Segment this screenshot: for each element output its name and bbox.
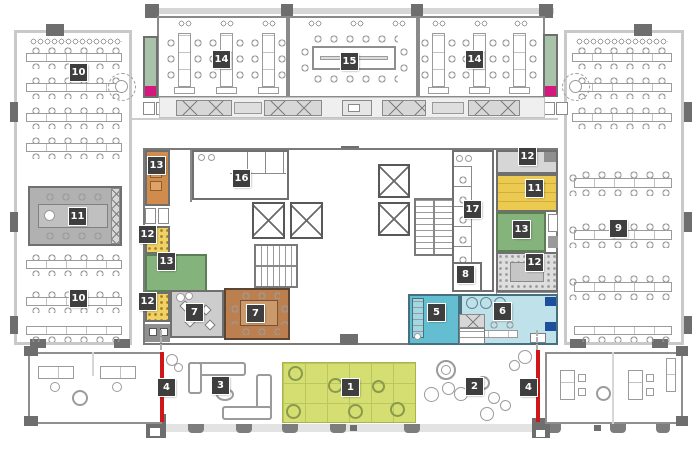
office-desk — [560, 370, 575, 400]
desk-bench — [26, 143, 122, 152]
sink — [208, 154, 215, 161]
pilaster — [684, 316, 692, 334]
round-table — [72, 390, 88, 406]
chair-row — [42, 231, 106, 240]
office-desk — [628, 370, 643, 400]
chair-row — [238, 327, 280, 335]
office-chair — [646, 388, 654, 396]
fridge-unit — [459, 314, 485, 328]
chair-col — [166, 35, 176, 85]
chair-col — [488, 35, 498, 85]
chair-row — [28, 152, 120, 159]
cloak-shelf — [432, 102, 464, 114]
chair-col — [399, 44, 408, 72]
desk-bench — [432, 33, 445, 87]
divider-dashed — [160, 330, 162, 350]
chair-row — [578, 240, 670, 248]
room-badge-10-top: 10 — [70, 64, 87, 81]
pilaster — [10, 212, 18, 232]
wall-chairs — [220, 20, 234, 27]
round-table — [286, 404, 301, 419]
chair-col — [277, 35, 287, 85]
chair-row — [574, 106, 670, 113]
room-badge-14-right: 14 — [466, 51, 483, 68]
column — [46, 24, 64, 36]
pilaster — [684, 212, 692, 232]
desk-chairs — [30, 38, 122, 45]
office-divider — [612, 352, 614, 424]
sink — [456, 155, 463, 162]
room-badge-12-right-top: 12 — [519, 148, 536, 165]
chair-row — [28, 136, 120, 143]
reception-table — [569, 80, 582, 93]
desk-bench — [262, 33, 275, 87]
room-badge-13-green-right: 13 — [513, 221, 530, 238]
desk-bench — [574, 326, 672, 335]
plant — [174, 363, 183, 372]
wall-chairs — [474, 20, 488, 27]
sofa — [222, 406, 272, 420]
door-bump — [188, 424, 204, 433]
office-divider — [92, 352, 94, 376]
room-badge-7-gray: 7 — [186, 304, 203, 321]
wall-chairs — [262, 20, 276, 27]
chair-row — [28, 46, 120, 53]
wall-chairs — [514, 20, 528, 27]
chair-row — [28, 122, 120, 129]
cabinet — [150, 181, 162, 191]
chair-col — [568, 170, 577, 196]
round-table — [372, 380, 385, 393]
room-badge-12-right-bottom: 12 — [526, 254, 543, 271]
wardrobe-x — [468, 100, 520, 116]
chair-row — [28, 253, 120, 260]
room-badge-16: 16 — [233, 170, 250, 187]
office-chair — [578, 374, 586, 382]
chair-row — [28, 306, 120, 313]
pilaster — [10, 316, 18, 334]
wall-chairs — [350, 20, 364, 27]
chair-col — [280, 301, 288, 325]
chair-row — [578, 335, 670, 342]
chair-col — [528, 35, 538, 85]
locker — [158, 208, 169, 224]
room-badge-1: 1 — [342, 379, 359, 396]
office-desk — [100, 366, 136, 379]
desk-bench — [574, 178, 672, 188]
column — [634, 24, 652, 36]
floor-plan: 1 2 3 4 4 5 6 7 7 8 9 10 10 11 11 12 12 … — [0, 0, 700, 452]
door-bump — [236, 424, 252, 433]
stair-rail — [256, 265, 296, 267]
storage-hatch — [111, 188, 120, 244]
wall — [190, 150, 192, 202]
pilaster — [684, 102, 692, 122]
stair-block-inner — [536, 430, 545, 437]
sink — [465, 155, 472, 162]
cabinet — [666, 358, 676, 392]
door-bump — [330, 424, 346, 433]
small-column — [594, 425, 601, 431]
desk-bench — [178, 33, 191, 87]
office-chair — [578, 388, 586, 396]
elevator — [252, 202, 285, 239]
wardrobe-x — [264, 100, 322, 116]
wall-chairs — [392, 20, 406, 27]
door-bump — [404, 424, 420, 433]
magenta-accent-left — [145, 86, 156, 96]
service-box — [149, 328, 157, 336]
left-offices — [28, 352, 162, 424]
desk-bench — [572, 53, 672, 62]
desk-bench — [26, 113, 122, 122]
room-badge-11-right: 11 — [526, 180, 543, 197]
round-table — [328, 378, 343, 393]
chair-col — [568, 222, 577, 248]
cloak-shelf — [234, 102, 262, 114]
office-desk — [38, 366, 74, 379]
side-table — [530, 333, 546, 343]
desk-bench — [26, 53, 122, 62]
round-table — [596, 386, 611, 401]
chair-col — [250, 35, 260, 85]
room-badge-13-green-left: 13 — [158, 253, 175, 270]
service-unit — [544, 152, 556, 162]
chair-row — [310, 34, 398, 44]
service-unit — [548, 236, 558, 248]
divider-dashed — [536, 330, 538, 350]
column — [24, 416, 38, 426]
round-table — [466, 297, 478, 309]
small-column — [350, 425, 357, 431]
wall-chairs — [178, 20, 192, 27]
room-badge-10-bottom: 10 — [70, 290, 87, 307]
round-table — [390, 402, 405, 417]
sink — [198, 154, 205, 161]
wardrobe-x — [176, 100, 232, 116]
desk-base — [174, 87, 195, 94]
room-badge-9: 9 — [610, 220, 627, 237]
magenta-accent-right — [545, 86, 556, 96]
chair-row — [310, 74, 398, 84]
chair-row — [28, 92, 120, 99]
desk-bench — [513, 33, 526, 87]
chair-col — [235, 35, 245, 85]
wardrobe-x — [382, 100, 426, 116]
chair-col — [420, 35, 430, 85]
room-badge-12-left-upper: 12 — [139, 226, 156, 243]
wall-chairs — [308, 20, 322, 27]
pouf — [500, 400, 511, 411]
desk-base — [258, 87, 279, 94]
desk-base — [428, 87, 449, 94]
sofa — [188, 362, 202, 394]
pouf — [441, 365, 451, 375]
round-table — [185, 292, 193, 300]
elevator — [290, 202, 323, 239]
chair-row — [28, 335, 120, 342]
room-badge-12-left-lower: 12 — [139, 293, 156, 310]
room-badge-5: 5 — [428, 304, 445, 321]
desk-base — [216, 87, 237, 94]
navy-unit — [545, 297, 556, 306]
room-badge-4-right: 4 — [520, 379, 537, 396]
room-badge-6: 6 — [494, 303, 511, 320]
desk-bench — [574, 282, 672, 292]
desk-bench — [26, 260, 122, 269]
chair-row — [28, 269, 120, 276]
room-badge-4-left: 4 — [158, 379, 175, 396]
room-badge-2: 2 — [466, 378, 483, 395]
chair-row — [578, 188, 670, 196]
column — [676, 416, 688, 426]
room-badge-17: 17 — [464, 201, 481, 218]
locker — [556, 102, 568, 115]
cloak-counter-unit — [348, 104, 360, 112]
navy-unit — [545, 322, 556, 331]
chair-row — [578, 170, 670, 178]
chair-row — [42, 192, 106, 201]
chair-col — [230, 301, 238, 325]
locker — [548, 214, 558, 232]
desk-base — [469, 87, 490, 94]
chair-col — [300, 44, 309, 72]
stool — [414, 333, 421, 340]
door-bump — [610, 424, 626, 433]
desk-bench — [572, 113, 672, 122]
stair-block-inner — [150, 428, 160, 436]
door-bump — [282, 424, 298, 433]
stair-rail — [433, 200, 435, 254]
round-table — [288, 366, 303, 381]
shelf-unit — [459, 328, 485, 344]
chair-row — [574, 122, 670, 129]
chair-row — [28, 106, 120, 113]
chair-row — [574, 46, 670, 53]
chair-row — [578, 274, 670, 282]
room-badge-3: 3 — [212, 377, 229, 394]
locker — [145, 208, 156, 224]
office-chair — [112, 382, 122, 392]
office-chair — [646, 374, 654, 382]
shelf-unit — [412, 298, 424, 338]
reception-table — [115, 80, 128, 93]
chair-row — [574, 62, 670, 69]
room-badge-14-left: 14 — [213, 51, 230, 68]
room-badge-11-left: 11 — [69, 208, 86, 225]
pouf — [424, 387, 439, 402]
chair-row — [238, 291, 280, 299]
column — [676, 346, 688, 356]
plant — [518, 350, 532, 364]
chair-row — [578, 292, 670, 300]
office-chair — [50, 382, 60, 392]
chair-col — [568, 274, 577, 300]
projector — [44, 210, 55, 221]
chair-col — [501, 35, 511, 85]
room-badge-13-orange: 13 — [148, 157, 165, 174]
door-bump — [656, 424, 670, 433]
room-13-green-left — [145, 254, 207, 292]
pouf — [480, 407, 494, 421]
wall-chairs — [432, 20, 446, 27]
room-badge-15: 15 — [341, 53, 358, 70]
entry-column — [340, 334, 358, 345]
desk-bench — [26, 326, 122, 335]
chair-col — [193, 35, 203, 85]
locker — [143, 102, 155, 115]
plant — [509, 360, 520, 371]
round-table — [480, 297, 492, 309]
elevator — [378, 202, 410, 236]
round-table — [348, 404, 363, 419]
elevator — [378, 164, 410, 198]
pouf — [488, 392, 500, 404]
chair-col — [447, 35, 457, 85]
desk-chairs — [576, 38, 668, 45]
top-exterior-wall — [150, 8, 554, 14]
room-badge-8: 8 — [457, 266, 474, 283]
pilaster — [10, 102, 18, 122]
column — [24, 346, 38, 356]
desk-base — [509, 87, 530, 94]
room-badge-7-brown: 7 — [247, 305, 264, 322]
